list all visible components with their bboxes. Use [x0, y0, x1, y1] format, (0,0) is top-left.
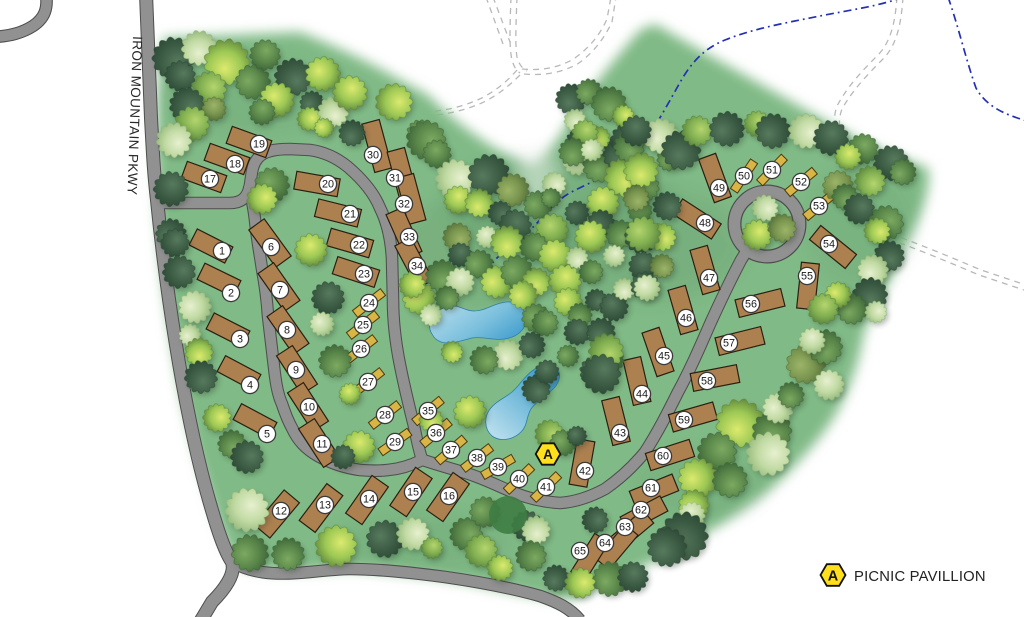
svg-text:60: 60	[657, 451, 669, 463]
svg-text:5: 5	[264, 429, 270, 441]
svg-text:1: 1	[219, 246, 225, 258]
svg-text:62: 62	[635, 505, 647, 517]
svg-text:13: 13	[319, 500, 331, 512]
svg-text:18: 18	[229, 159, 241, 171]
svg-text:8: 8	[284, 325, 290, 337]
svg-text:20: 20	[322, 179, 334, 191]
svg-text:35: 35	[422, 406, 434, 418]
svg-text:59: 59	[678, 415, 690, 427]
svg-text:55: 55	[801, 271, 813, 283]
svg-text:22: 22	[353, 240, 365, 252]
svg-text:A: A	[543, 447, 553, 462]
svg-text:14: 14	[363, 494, 375, 506]
svg-text:17: 17	[204, 174, 216, 186]
svg-text:10: 10	[303, 402, 315, 414]
svg-text:4: 4	[247, 380, 253, 392]
svg-text:3: 3	[237, 334, 243, 346]
svg-text:44: 44	[636, 389, 648, 401]
svg-text:50: 50	[738, 171, 750, 183]
svg-text:24: 24	[363, 298, 375, 310]
svg-text:40: 40	[513, 474, 525, 486]
svg-text:56: 56	[745, 299, 757, 311]
svg-text:43: 43	[614, 428, 626, 440]
svg-text:65: 65	[574, 546, 586, 558]
svg-text:32: 32	[398, 199, 410, 211]
svg-text:58: 58	[701, 376, 713, 388]
svg-text:12: 12	[275, 506, 287, 518]
svg-text:49: 49	[713, 183, 725, 195]
svg-text:9: 9	[293, 365, 299, 377]
svg-text:31: 31	[389, 173, 401, 185]
svg-text:16: 16	[443, 491, 455, 503]
svg-text:63: 63	[619, 522, 631, 534]
svg-text:28: 28	[379, 410, 391, 422]
svg-text:27: 27	[362, 377, 374, 389]
svg-text:11: 11	[316, 439, 327, 451]
svg-text:A: A	[828, 569, 839, 585]
svg-text:46: 46	[680, 313, 692, 325]
svg-text:45: 45	[658, 351, 670, 363]
svg-text:6: 6	[268, 242, 274, 254]
svg-text:54: 54	[823, 239, 835, 251]
svg-text:33: 33	[403, 232, 415, 244]
svg-text:34: 34	[411, 261, 423, 273]
svg-text:30: 30	[367, 150, 379, 162]
svg-text:42: 42	[579, 466, 591, 478]
svg-text:41: 41	[540, 482, 552, 494]
svg-text:36: 36	[430, 428, 442, 440]
svg-text:21: 21	[344, 209, 356, 221]
svg-text:47: 47	[703, 273, 715, 285]
svg-text:37: 37	[445, 445, 457, 457]
svg-text:61: 61	[645, 483, 657, 495]
svg-text:23: 23	[358, 269, 370, 281]
svg-text:29: 29	[389, 437, 401, 449]
svg-text:19: 19	[253, 139, 265, 151]
svg-text:53: 53	[813, 201, 825, 213]
svg-text:52: 52	[795, 177, 807, 189]
svg-text:39: 39	[492, 462, 504, 474]
svg-text:PICNIC PAVILLION: PICNIC PAVILLION	[854, 569, 986, 585]
svg-text:48: 48	[699, 218, 711, 230]
svg-text:15: 15	[407, 487, 419, 499]
svg-text:7: 7	[277, 285, 283, 297]
svg-text:51: 51	[766, 165, 778, 177]
svg-text:38: 38	[471, 453, 483, 465]
svg-text:25: 25	[357, 320, 369, 332]
svg-text:2: 2	[228, 288, 234, 300]
svg-text:57: 57	[723, 338, 735, 350]
svg-text:26: 26	[355, 344, 367, 356]
svg-text:64: 64	[599, 538, 611, 550]
